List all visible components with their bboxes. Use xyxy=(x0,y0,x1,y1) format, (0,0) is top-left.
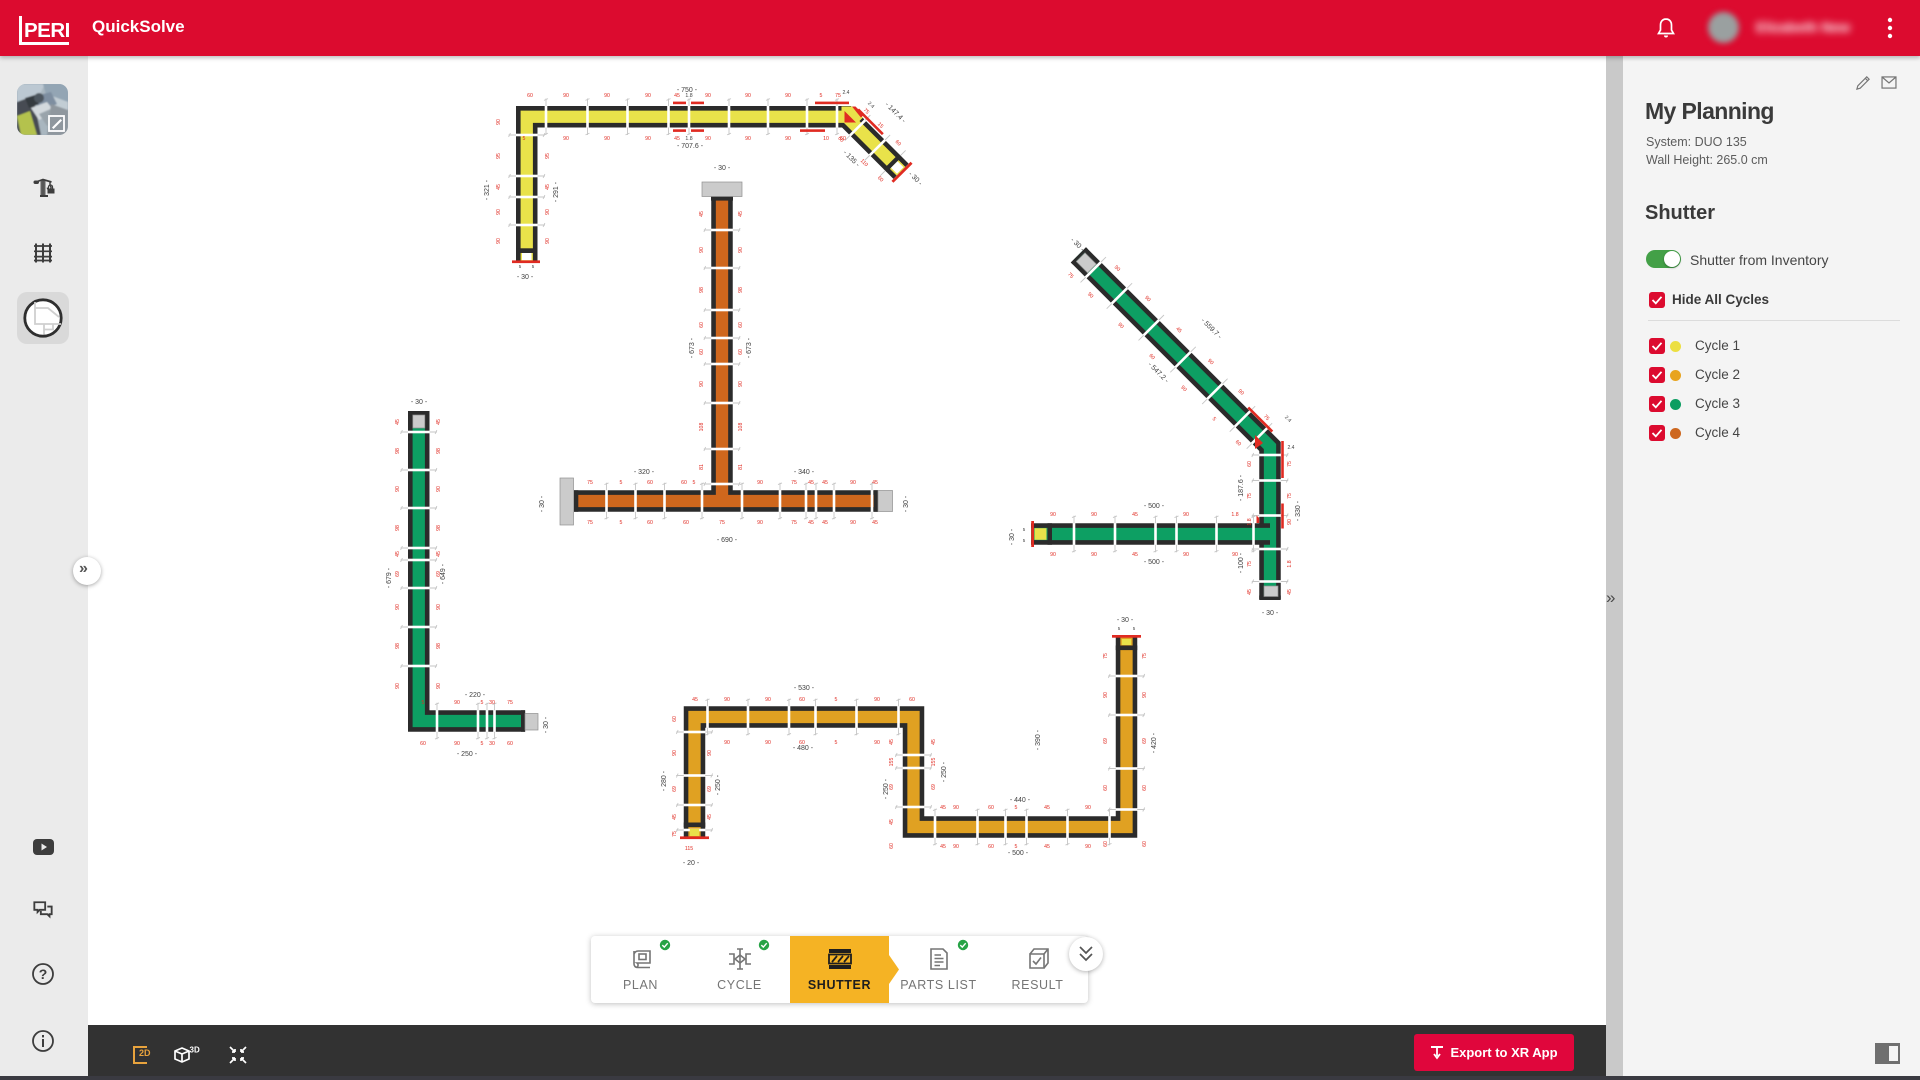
svg-text:90: 90 xyxy=(738,381,744,387)
svg-text:5: 5 xyxy=(519,264,522,269)
svg-text:90: 90 xyxy=(645,93,651,99)
svg-text:- 390 -: - 390 - xyxy=(1035,729,1042,750)
svg-text:45: 45 xyxy=(822,520,828,526)
svg-text:- 690 -: - 690 - xyxy=(717,537,738,544)
svg-text:75: 75 xyxy=(835,93,841,99)
svg-text:5: 5 xyxy=(1015,805,1018,811)
svg-text:75: 75 xyxy=(1247,561,1253,567)
svg-text:90: 90 xyxy=(496,119,502,125)
svg-text:98: 98 xyxy=(395,643,401,649)
svg-text:60: 60 xyxy=(1103,785,1109,791)
svg-text:- 20 -: - 20 - xyxy=(683,860,700,867)
svg-text:90: 90 xyxy=(765,697,771,703)
svg-text:90: 90 xyxy=(436,683,442,689)
svg-text:- 340 -: - 340 - xyxy=(794,469,815,476)
svg-text:1.8: 1.8 xyxy=(685,93,692,99)
svg-text:95: 95 xyxy=(545,153,551,159)
svg-text:90: 90 xyxy=(757,480,763,486)
svg-text:60: 60 xyxy=(699,322,705,328)
svg-text:1.8: 1.8 xyxy=(1287,560,1293,567)
svg-text:108: 108 xyxy=(699,423,705,432)
svg-text:- 30 -: - 30 - xyxy=(1117,617,1134,624)
svg-text:45: 45 xyxy=(931,739,937,745)
svg-text:60: 60 xyxy=(647,480,653,486)
svg-text:75: 75 xyxy=(1287,493,1293,499)
svg-text:- 673 -: - 673 - xyxy=(689,337,696,358)
svg-text:- 100 -: - 100 - xyxy=(1238,552,1245,573)
svg-text:45: 45 xyxy=(940,805,946,811)
svg-text:90: 90 xyxy=(705,93,711,99)
svg-text:5: 5 xyxy=(693,480,696,486)
svg-text:108: 108 xyxy=(738,423,744,432)
svg-text:1.8: 1.8 xyxy=(1231,512,1238,518)
svg-text:90: 90 xyxy=(850,520,856,526)
svg-text:60: 60 xyxy=(988,844,994,850)
svg-text:45: 45 xyxy=(395,419,401,425)
svg-text:90: 90 xyxy=(1050,512,1056,518)
svg-text:69: 69 xyxy=(436,571,442,577)
svg-text:5: 5 xyxy=(1211,416,1217,422)
svg-text:69: 69 xyxy=(889,784,895,790)
svg-text:5: 5 xyxy=(835,740,838,746)
svg-text:75: 75 xyxy=(1287,461,1293,467)
svg-text:60: 60 xyxy=(527,93,533,99)
svg-text:95: 95 xyxy=(496,153,502,159)
svg-text:90: 90 xyxy=(1086,291,1094,299)
svg-text:75: 75 xyxy=(672,831,678,837)
svg-text:90: 90 xyxy=(436,486,442,492)
svg-text:2.4: 2.4 xyxy=(1283,415,1292,424)
svg-text:2.4: 2.4 xyxy=(843,90,850,96)
svg-text:45: 45 xyxy=(436,551,442,557)
svg-text:90: 90 xyxy=(395,604,401,610)
svg-text:5: 5 xyxy=(620,480,623,486)
svg-text:60: 60 xyxy=(1142,785,1148,791)
svg-text:5: 5 xyxy=(481,700,484,706)
svg-text:90: 90 xyxy=(765,740,771,746)
svg-text:90: 90 xyxy=(738,247,744,253)
svg-text:81: 81 xyxy=(699,464,705,470)
svg-text:- 30 -: - 30 - xyxy=(903,495,910,512)
svg-text:5: 5 xyxy=(1015,844,1018,850)
svg-text:45: 45 xyxy=(674,136,680,142)
svg-text:1.8: 1.8 xyxy=(1247,518,1253,525)
svg-text:45: 45 xyxy=(738,211,744,217)
svg-text:98: 98 xyxy=(436,525,442,531)
svg-text:75: 75 xyxy=(1247,493,1253,499)
svg-text:90: 90 xyxy=(672,750,678,756)
svg-text:60: 60 xyxy=(799,697,805,703)
svg-text:45: 45 xyxy=(889,739,895,745)
svg-text:60: 60 xyxy=(683,520,689,526)
svg-text:98: 98 xyxy=(395,448,401,454)
svg-text:5: 5 xyxy=(820,93,823,99)
svg-text:90: 90 xyxy=(699,247,705,253)
svg-text:- 30 -: - 30 - xyxy=(1009,528,1016,545)
svg-text:- 673 -: - 673 - xyxy=(746,337,753,358)
svg-text:?: ? xyxy=(39,966,48,982)
svg-text:75: 75 xyxy=(587,520,593,526)
svg-text:45: 45 xyxy=(436,419,442,425)
svg-text:- 135 -: - 135 - xyxy=(841,149,861,169)
svg-text:90: 90 xyxy=(1143,295,1151,303)
svg-text:90: 90 xyxy=(496,238,502,244)
svg-text:10: 10 xyxy=(823,136,829,142)
svg-text:90: 90 xyxy=(874,697,880,703)
svg-text:69: 69 xyxy=(707,786,713,792)
svg-text:45: 45 xyxy=(1247,589,1253,595)
svg-text:90: 90 xyxy=(1183,552,1189,558)
svg-text:115: 115 xyxy=(685,846,693,852)
svg-text:98: 98 xyxy=(436,643,442,649)
svg-text:- 250 -: - 250 - xyxy=(941,761,948,782)
svg-text:5: 5 xyxy=(620,520,623,526)
svg-text:60: 60 xyxy=(699,349,705,355)
svg-text:60: 60 xyxy=(647,520,653,526)
svg-text:45: 45 xyxy=(545,184,551,190)
svg-text:PERI: PERI xyxy=(24,19,70,42)
svg-text:- 220 -: - 220 - xyxy=(465,692,486,699)
svg-text:60: 60 xyxy=(420,741,426,747)
svg-text:60: 60 xyxy=(1103,841,1109,847)
svg-text:90: 90 xyxy=(645,136,651,142)
svg-text:- 707.6 -: - 707.6 - xyxy=(677,143,704,150)
svg-text:60: 60 xyxy=(909,697,915,703)
svg-text:- 147.4 -: - 147.4 - xyxy=(883,101,907,125)
svg-text:90: 90 xyxy=(724,740,730,746)
svg-text:90: 90 xyxy=(757,520,763,526)
svg-text:75: 75 xyxy=(587,480,593,486)
svg-text:45: 45 xyxy=(1174,326,1182,334)
svg-text:90: 90 xyxy=(395,486,401,492)
svg-text:- 321 -: - 321 - xyxy=(484,179,491,200)
svg-text:45: 45 xyxy=(692,697,698,703)
svg-text:60: 60 xyxy=(1147,353,1155,361)
svg-text:45: 45 xyxy=(872,520,878,526)
svg-text:45: 45 xyxy=(672,814,678,820)
svg-text:90: 90 xyxy=(1206,358,1214,366)
svg-text:90: 90 xyxy=(1085,844,1091,850)
svg-text:90: 90 xyxy=(454,741,460,747)
svg-text:90: 90 xyxy=(395,683,401,689)
svg-text:90: 90 xyxy=(563,93,569,99)
svg-text:- 280 -: - 280 - xyxy=(661,770,668,791)
svg-text:60: 60 xyxy=(876,175,884,183)
svg-text:90: 90 xyxy=(785,93,791,99)
svg-text:90: 90 xyxy=(745,93,751,99)
svg-text:- 559.7 -: - 559.7 - xyxy=(1199,317,1223,341)
svg-text:45: 45 xyxy=(1044,844,1050,850)
svg-text:60: 60 xyxy=(1247,461,1253,467)
svg-text:45: 45 xyxy=(1132,512,1138,518)
svg-text:90: 90 xyxy=(724,697,730,703)
svg-text:69: 69 xyxy=(672,786,678,792)
svg-text:90: 90 xyxy=(953,844,959,850)
svg-text:45: 45 xyxy=(699,211,705,217)
svg-text:75: 75 xyxy=(1142,653,1148,659)
svg-text:90: 90 xyxy=(496,209,502,215)
svg-text:69: 69 xyxy=(1103,738,1109,744)
svg-text:- 330 -: - 330 - xyxy=(1295,500,1302,521)
svg-text:- 30 -: - 30 - xyxy=(517,274,534,281)
svg-text:98: 98 xyxy=(699,287,705,293)
svg-text:5: 5 xyxy=(1023,538,1026,543)
svg-text:90: 90 xyxy=(1113,265,1121,273)
svg-text:90: 90 xyxy=(785,136,791,142)
svg-text:90: 90 xyxy=(1091,512,1097,518)
svg-text:75: 75 xyxy=(719,520,725,526)
svg-text:- 250 -: - 250 - xyxy=(715,774,722,795)
svg-text:2.4: 2.4 xyxy=(1288,445,1295,451)
svg-text:45: 45 xyxy=(707,814,713,820)
svg-text:81: 81 xyxy=(738,464,744,470)
svg-text:45: 45 xyxy=(395,551,401,557)
svg-text:90: 90 xyxy=(1091,552,1097,558)
svg-text:155: 155 xyxy=(931,758,937,767)
svg-text:75: 75 xyxy=(791,520,797,526)
svg-text:45: 45 xyxy=(1044,805,1050,811)
svg-text:5: 5 xyxy=(532,264,535,269)
svg-text:45: 45 xyxy=(940,844,946,850)
svg-text:- 30 -: - 30 - xyxy=(543,716,550,733)
svg-text:110: 110 xyxy=(859,158,869,168)
svg-text:- 250 -: - 250 - xyxy=(457,751,478,758)
svg-text:2D: 2D xyxy=(139,1048,151,1058)
svg-text:- 679 -: - 679 - xyxy=(386,567,393,588)
svg-text:90: 90 xyxy=(1232,552,1238,558)
svg-text:155: 155 xyxy=(889,758,895,767)
svg-text:60: 60 xyxy=(988,805,994,811)
svg-text:98: 98 xyxy=(395,525,401,531)
svg-text:90: 90 xyxy=(436,604,442,610)
svg-text:90: 90 xyxy=(1085,805,1091,811)
svg-text:45: 45 xyxy=(889,819,895,825)
svg-text:90: 90 xyxy=(1183,512,1189,518)
svg-text:5: 5 xyxy=(481,741,484,747)
svg-text:75: 75 xyxy=(1103,653,1109,659)
svg-text:- 30 -: - 30 - xyxy=(714,165,731,172)
svg-text:- 530 -: - 530 - xyxy=(794,685,815,692)
svg-text:90: 90 xyxy=(850,480,856,486)
svg-text:45: 45 xyxy=(674,93,680,99)
svg-text:90: 90 xyxy=(1287,519,1293,525)
svg-text:75: 75 xyxy=(1066,272,1074,280)
svg-text:3D: 3D xyxy=(190,1046,200,1055)
svg-text:75: 75 xyxy=(791,480,797,486)
svg-text:45: 45 xyxy=(1287,589,1293,595)
svg-text:- 480 -: - 480 - xyxy=(793,745,814,752)
svg-text:98: 98 xyxy=(738,287,744,293)
svg-text:45: 45 xyxy=(496,184,502,190)
svg-text:30: 30 xyxy=(489,700,495,706)
svg-text:- 500 -: - 500 - xyxy=(1008,850,1029,857)
svg-text:5: 5 xyxy=(1023,527,1026,532)
svg-text:60: 60 xyxy=(672,716,678,722)
svg-text:90: 90 xyxy=(454,700,460,706)
svg-text:90: 90 xyxy=(545,238,551,244)
svg-text:45: 45 xyxy=(808,520,814,526)
svg-text:60: 60 xyxy=(889,843,895,849)
svg-text:60: 60 xyxy=(738,349,744,355)
svg-text:30: 30 xyxy=(489,741,495,747)
svg-text:75: 75 xyxy=(507,700,513,706)
svg-text:90: 90 xyxy=(1142,692,1148,698)
svg-text:5: 5 xyxy=(422,700,425,706)
svg-text:5: 5 xyxy=(1118,626,1121,631)
svg-text:- 291 -: - 291 - xyxy=(553,181,560,202)
svg-text:60: 60 xyxy=(894,139,902,147)
svg-text:90: 90 xyxy=(705,136,711,142)
svg-text:98: 98 xyxy=(436,448,442,454)
svg-text:69: 69 xyxy=(931,784,937,790)
svg-text:- 500 -: - 500 - xyxy=(1144,559,1165,566)
svg-text:45: 45 xyxy=(822,480,828,486)
svg-text:- 547.2 -: - 547.2 - xyxy=(1146,361,1170,385)
svg-text:- 30 -: - 30 - xyxy=(1262,610,1279,617)
svg-text:45: 45 xyxy=(872,480,878,486)
svg-text:- 187.6 -: - 187.6 - xyxy=(1238,474,1245,501)
svg-text:90: 90 xyxy=(1116,322,1124,330)
svg-text:69: 69 xyxy=(1142,738,1148,744)
svg-text:60: 60 xyxy=(799,740,805,746)
svg-text:90: 90 xyxy=(745,136,751,142)
svg-text:90: 90 xyxy=(707,750,713,756)
svg-text:- 420 -: - 420 - xyxy=(1151,732,1158,753)
svg-text:5: 5 xyxy=(523,136,526,142)
svg-text:90: 90 xyxy=(953,805,959,811)
svg-text:60: 60 xyxy=(507,741,513,747)
svg-text:90: 90 xyxy=(1179,385,1187,393)
svg-text:90: 90 xyxy=(604,136,610,142)
svg-text:90: 90 xyxy=(1103,692,1109,698)
svg-text:60: 60 xyxy=(1142,841,1148,847)
svg-text:90: 90 xyxy=(545,209,551,215)
svg-text:45: 45 xyxy=(1132,552,1138,558)
svg-text:- 30 -: - 30 - xyxy=(907,171,924,188)
svg-text:1.8: 1.8 xyxy=(685,136,692,142)
svg-text:60: 60 xyxy=(1234,439,1242,447)
svg-text:- 30 -: - 30 - xyxy=(539,495,546,512)
svg-text:69: 69 xyxy=(395,571,401,577)
svg-text:90: 90 xyxy=(1237,388,1245,396)
svg-text:90: 90 xyxy=(563,136,569,142)
svg-text:90: 90 xyxy=(874,740,880,746)
svg-text:60: 60 xyxy=(738,322,744,328)
svg-text:- 30 -: - 30 - xyxy=(411,399,428,406)
svg-text:60: 60 xyxy=(681,480,687,486)
svg-text:- 320 -: - 320 - xyxy=(634,469,655,476)
svg-text:45: 45 xyxy=(808,480,814,486)
svg-text:90: 90 xyxy=(604,93,610,99)
svg-text:5: 5 xyxy=(835,697,838,703)
svg-text:90: 90 xyxy=(699,381,705,387)
svg-text:90: 90 xyxy=(1050,552,1056,558)
svg-text:- 440 -: - 440 - xyxy=(1010,797,1031,804)
svg-text:5: 5 xyxy=(1133,626,1136,631)
svg-text:- 500 -: - 500 - xyxy=(1144,503,1165,510)
